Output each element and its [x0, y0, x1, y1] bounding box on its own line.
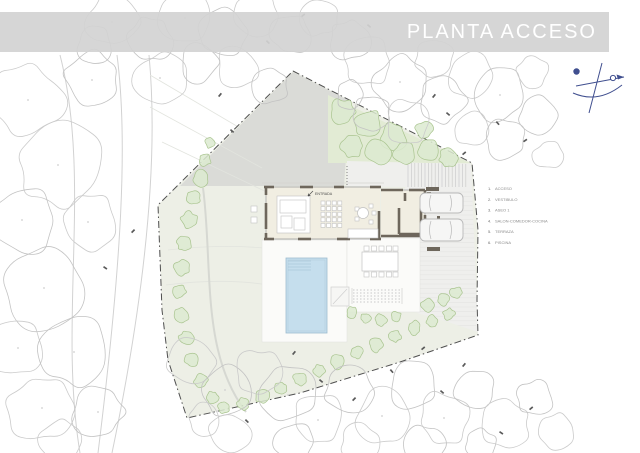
- dining-chair: [338, 212, 342, 216]
- chair: [369, 204, 373, 208]
- tree-tag: [390, 369, 394, 373]
- tree-canopy: [0, 321, 43, 373]
- compass-needle-line: [589, 63, 602, 113]
- tree-canopy: [455, 111, 489, 145]
- outdoor-dining-table: [362, 252, 398, 271]
- outdoor-chair: [372, 246, 377, 251]
- dining-chair: [327, 218, 331, 222]
- tree-tag: [245, 419, 249, 423]
- parked-car: [420, 193, 463, 213]
- tree-canopy: [63, 49, 116, 106]
- page-title: PLANTA ACCESO: [407, 21, 597, 44]
- sofa: [294, 218, 305, 230]
- parked-car: [420, 219, 463, 241]
- tree-trunk: [57, 164, 59, 166]
- dining-chair: [338, 207, 342, 211]
- tree-trunk: [399, 81, 401, 83]
- dining-chair: [338, 223, 342, 227]
- dining-chair: [327, 223, 331, 227]
- tree-canopy: [532, 141, 564, 167]
- compass-arc: [573, 85, 622, 97]
- dining-chair: [327, 207, 331, 211]
- tree-canopy: [355, 386, 410, 443]
- swimming-pool: [286, 258, 327, 333]
- tree-canopy: [38, 419, 82, 453]
- legend-item-number: 2.: [488, 197, 491, 202]
- tree-trunk: [159, 77, 161, 79]
- tree-tag: [103, 266, 107, 270]
- tree-canopy: [63, 195, 115, 252]
- dining-chair: [327, 212, 331, 216]
- shrub: [347, 307, 357, 319]
- car-body: [420, 219, 463, 241]
- outdoor-chair: [379, 246, 384, 251]
- tree-tag: [131, 229, 135, 233]
- tree-canopy: [392, 361, 435, 409]
- shrub: [392, 311, 402, 321]
- tree-canopy: [296, 396, 341, 442]
- entrance-label: ENTRADA: [315, 192, 333, 196]
- tree-canopy: [421, 76, 468, 125]
- sofa: [280, 200, 306, 213]
- tree-canopy: [448, 51, 492, 98]
- north-compass-icon: [573, 63, 624, 113]
- porch-chair: [251, 217, 257, 223]
- legend-item-label: VESTIBULO: [495, 197, 517, 202]
- tree-trunk: [87, 221, 89, 223]
- compass-arrowhead: [617, 75, 625, 80]
- dining-chair: [338, 201, 342, 205]
- dining-chair: [321, 201, 325, 205]
- dining-chair: [321, 207, 325, 211]
- dining-chair: [321, 212, 325, 216]
- tree-tag: [432, 94, 436, 98]
- tree-canopy: [538, 413, 573, 451]
- tree-trunk: [21, 219, 23, 221]
- legend-item-number: 5.: [488, 229, 491, 234]
- dining-chair: [338, 218, 342, 222]
- outdoor-chair: [387, 246, 392, 251]
- legend-item-label: TERRAZA: [495, 229, 514, 234]
- dining-chair: [321, 223, 325, 227]
- tree-canopy: [519, 95, 559, 135]
- tree-canopy: [273, 424, 314, 453]
- tree-tag: [446, 112, 450, 116]
- tree-canopy: [474, 68, 523, 123]
- chair: [372, 211, 376, 215]
- driveway-area: [180, 72, 350, 186]
- legend-item-label: ACCESO: [495, 186, 512, 191]
- outdoor-chair: [364, 246, 369, 251]
- chair: [355, 217, 359, 221]
- kitchen-counter: [348, 229, 378, 238]
- dining-chair: [332, 223, 336, 227]
- tree-trunk: [381, 415, 383, 417]
- tree-canopy: [219, 46, 259, 87]
- dining-chair: [332, 207, 336, 211]
- dining-chair: [332, 218, 336, 222]
- wall-stub: [426, 187, 439, 191]
- tree-tag: [218, 93, 222, 97]
- outdoor-chair: [387, 272, 392, 277]
- shrub: [186, 191, 200, 204]
- tree-trunk: [17, 347, 19, 349]
- tree-canopy: [341, 422, 380, 453]
- chair: [369, 220, 373, 224]
- title-band: PLANTA ACCESO: [0, 12, 609, 52]
- tree-canopy: [72, 386, 126, 436]
- sofa: [281, 216, 292, 228]
- tree-trunk: [73, 351, 75, 353]
- contour-line: [150, 75, 240, 128]
- house-floor: [381, 190, 425, 236]
- shrub: [205, 138, 215, 149]
- legend-item-label: PISCINA: [495, 240, 511, 245]
- outdoor-chair: [372, 272, 377, 277]
- tree-trunk: [287, 394, 289, 396]
- tree-tag: [523, 139, 527, 143]
- tree-canopy: [453, 371, 494, 408]
- tree-canopy: [421, 391, 470, 443]
- tree-canopy: [486, 119, 524, 160]
- compass-ring: [610, 75, 615, 80]
- outdoor-chair: [393, 246, 398, 251]
- tree-trunk: [443, 417, 445, 419]
- legend-item-number: 4.: [488, 218, 491, 223]
- outdoor-chair: [393, 272, 398, 277]
- road-line: [98, 55, 122, 453]
- tree-tag: [462, 151, 466, 155]
- shrub: [218, 402, 230, 414]
- legend-item-number: 1.: [488, 186, 491, 191]
- outdoor-chair: [379, 272, 384, 277]
- tree-canopy: [482, 398, 529, 447]
- tree-tag: [499, 431, 503, 435]
- plan-canvas: ENTRADA1.ACCESO2.VESTIBULO3.ASEO 14.SALO…: [0, 0, 640, 453]
- tree-canopy: [37, 316, 105, 387]
- tree-trunk: [317, 419, 319, 421]
- dining-chair: [321, 218, 325, 222]
- compass-arrow-line: [576, 77, 624, 86]
- legend-item-number: 6.: [488, 240, 491, 245]
- round-table: [358, 208, 369, 219]
- tree-trunk: [499, 94, 501, 96]
- tree-canopy: [465, 428, 496, 453]
- tree-tag: [529, 406, 533, 410]
- legend: 1.ACCESO2.VESTIBULO3.ASEO 14.SALON-COMED…: [488, 186, 548, 245]
- dining-chair: [332, 212, 336, 216]
- tree-trunk: [27, 99, 29, 101]
- dining-chair: [332, 201, 336, 205]
- legend-item-number: 3.: [488, 208, 491, 213]
- porch-chair: [251, 206, 257, 212]
- wall-stub: [427, 247, 440, 251]
- tree-tag: [462, 363, 466, 367]
- tree-canopy: [6, 379, 75, 438]
- shrub: [176, 236, 191, 250]
- car-body: [420, 193, 463, 213]
- compass-dot: [573, 68, 579, 74]
- legend-item-label: ASEO 1: [495, 208, 510, 213]
- dining-chair: [327, 201, 331, 205]
- tree-trunk: [43, 287, 45, 289]
- site-plan-drawing: ENTRADA1.ACCESO2.VESTIBULO3.ASEO 14.SALO…: [0, 0, 640, 453]
- legend-item-label: SALON-COMEDOR-COCINA: [495, 218, 548, 223]
- tree-tag: [352, 397, 356, 401]
- tree-canopy: [0, 63, 68, 136]
- tree-trunk: [41, 407, 43, 409]
- tree-trunk: [224, 389, 226, 391]
- tree-trunk: [97, 411, 99, 413]
- outdoor-chair: [364, 272, 369, 277]
- tree-trunk: [91, 79, 93, 81]
